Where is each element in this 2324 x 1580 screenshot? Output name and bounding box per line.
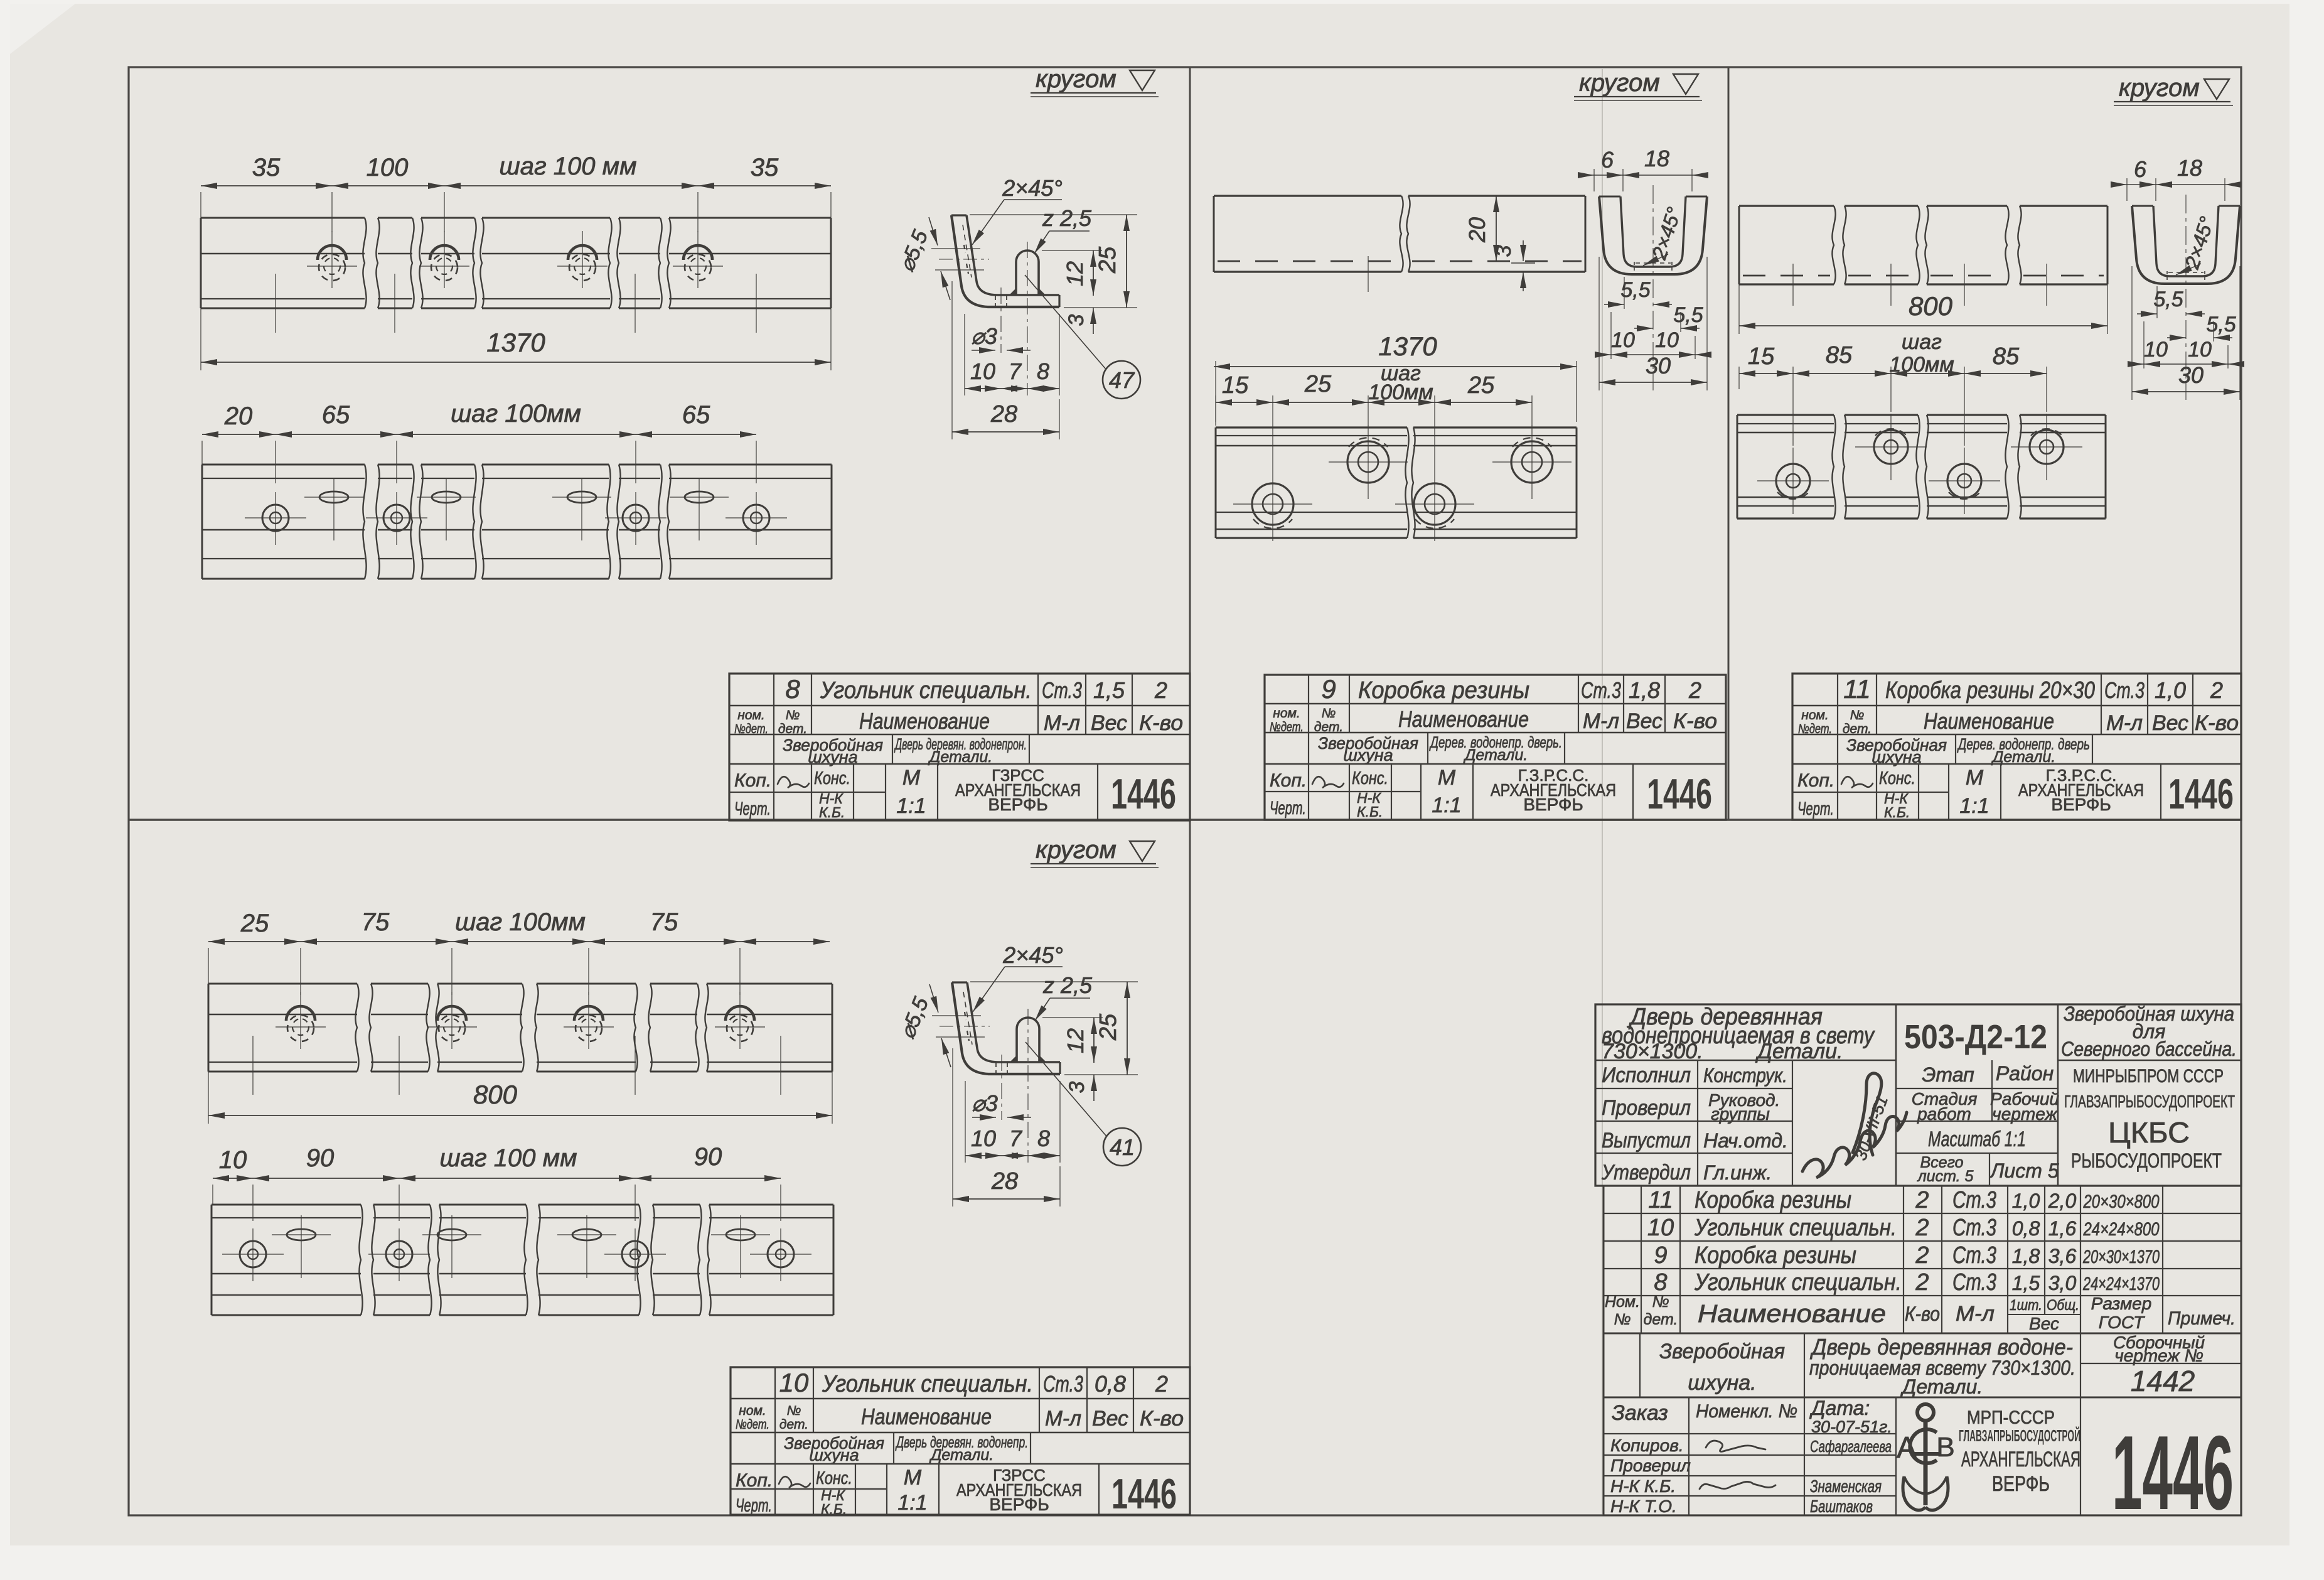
svg-text:800: 800 — [1909, 291, 1953, 321]
svg-text:М: М — [904, 1466, 922, 1490]
svg-text:6: 6 — [1601, 147, 1614, 173]
svg-text:2: 2 — [1915, 1242, 1929, 1269]
svg-text:ном.: ном. — [1273, 706, 1300, 721]
svg-text:№дет.: №дет. — [736, 1417, 769, 1432]
svg-text:РЫБОСУДОПРОЕКТ: РЫБОСУДОПРОЕКТ — [2071, 1149, 2222, 1172]
svg-text:1,6: 1,6 — [2048, 1217, 2077, 1240]
svg-text:8: 8 — [1037, 1126, 1050, 1151]
svg-text:Коп.: Коп. — [736, 1470, 773, 1491]
svg-text:7: 7 — [1009, 358, 1022, 384]
svg-text:Наименование: Наименование — [859, 708, 990, 734]
svg-text:ЦКБС: ЦКБС — [2108, 1116, 2190, 1149]
svg-text:Лист 5: Лист 5 — [1989, 1159, 2059, 1182]
svg-text:Ном.: Ном. — [1605, 1293, 1640, 1311]
svg-text:Общ.: Общ. — [2047, 1297, 2079, 1314]
svg-text:65: 65 — [682, 401, 710, 429]
svg-text:№дет.: №дет. — [1798, 722, 1832, 736]
svg-text:11: 11 — [1648, 1187, 1673, 1213]
svg-text:АРХАНГЕЛЬСКАЯ: АРХАНГЕЛЬСКАЯ — [1961, 1448, 2080, 1471]
svg-text:№дет.: №дет. — [1270, 720, 1304, 734]
svg-text:Черт.: Черт. — [734, 798, 771, 819]
svg-text:Вес: Вес — [1092, 1407, 1128, 1431]
svg-text:5,5: 5,5 — [1620, 278, 1650, 302]
svg-text:10: 10 — [2188, 338, 2212, 362]
svg-text:ГЛАВЗАПРЫБОСУДОСТРОЙ: ГЛАВЗАПРЫБОСУДОСТРОЙ — [1959, 1426, 2080, 1445]
svg-text:2×45°: 2×45° — [1002, 175, 1062, 201]
svg-text:2: 2 — [1155, 1371, 1168, 1397]
svg-text:№: № — [1322, 706, 1336, 721]
svg-text:Размер: Размер — [2091, 1294, 2152, 1313]
svg-text:Коробка резины: Коробка резины — [1695, 1242, 1856, 1269]
svg-text:Черт.: Черт. — [736, 1495, 772, 1516]
svg-text:503-Д2-12: 503-Д2-12 — [1904, 1018, 2047, 1056]
svg-text:100: 100 — [367, 154, 409, 181]
svg-text:1442: 1442 — [2131, 1365, 2195, 1397]
svg-text:28: 28 — [991, 1168, 1018, 1195]
svg-text:2: 2 — [1915, 1269, 1929, 1296]
svg-text:Коп.: Коп. — [1797, 770, 1834, 791]
svg-text:1,5: 1,5 — [2012, 1272, 2040, 1294]
svg-text:группы: группы — [1711, 1104, 1770, 1124]
svg-text:шаг: шаг — [1902, 330, 1942, 354]
svg-text:Сафаргалеева: Сафаргалеева — [1810, 1437, 1892, 1456]
svg-text:К.Б.: К.Б. — [1357, 803, 1383, 820]
svg-text:М-л: М-л — [1583, 709, 1619, 733]
svg-text:Масштаб 1:1: Масштаб 1:1 — [1928, 1127, 2026, 1151]
svg-text:Конс.: Конс. — [1879, 768, 1915, 788]
svg-text:Ст.3: Ст.3 — [1043, 1371, 1083, 1397]
svg-text:20: 20 — [224, 402, 253, 430]
svg-text:Наименование: Наименование — [1398, 706, 1529, 732]
svg-text:18: 18 — [1644, 146, 1669, 171]
svg-text:шхуна: шхуна — [808, 748, 857, 766]
svg-text:1,0: 1,0 — [2155, 677, 2186, 703]
svg-text:Северного бассейна.: Северного бассейна. — [2061, 1038, 2237, 1060]
svg-text:Район: Район — [1996, 1062, 2054, 1085]
svg-text:№: № — [1614, 1311, 1631, 1328]
svg-text:6: 6 — [2134, 156, 2147, 182]
svg-text:Ст.3: Ст.3 — [1952, 1215, 1996, 1241]
svg-text:ВЕРФЬ: ВЕРФЬ — [1992, 1472, 2050, 1496]
svg-text:5,5: 5,5 — [2153, 288, 2183, 311]
svg-text:Знаменская: Знаменская — [1810, 1476, 1882, 1496]
svg-text:К.Б.: К.Б. — [1884, 804, 1910, 820]
svg-text:2: 2 — [1915, 1215, 1929, 1241]
svg-text:65: 65 — [322, 401, 350, 429]
svg-text:9: 9 — [1654, 1242, 1667, 1269]
svg-text:3: 3 — [1064, 314, 1088, 326]
svg-text:шхуна: шхуна — [1343, 746, 1393, 765]
svg-text:Ст.3: Ст.3 — [1952, 1269, 1996, 1296]
svg-text:Вес: Вес — [1626, 709, 1663, 733]
svg-text:1:1: 1:1 — [1432, 793, 1461, 817]
svg-text:85: 85 — [1993, 343, 2020, 370]
svg-text:ном.: ном. — [737, 708, 764, 723]
svg-text:1,5: 1,5 — [1093, 677, 1125, 703]
svg-text:дет.: дет. — [1314, 720, 1343, 734]
svg-text:25: 25 — [1304, 371, 1332, 397]
svg-text:Ст.3: Ст.3 — [1952, 1187, 1996, 1213]
svg-text:1:1: 1:1 — [896, 794, 926, 818]
svg-text:кругом: кругом — [1036, 65, 1116, 93]
svg-text:0,8: 0,8 — [2012, 1217, 2040, 1240]
svg-text:шхуна: шхуна — [809, 1446, 859, 1464]
svg-text:ном.: ном. — [1801, 708, 1828, 723]
svg-text:Ст.3: Ст.3 — [1952, 1242, 1996, 1269]
svg-text:10: 10 — [1611, 328, 1635, 352]
svg-text:Черт.: Черт. — [1270, 798, 1306, 819]
svg-text:Дата:: Дата: — [1809, 1397, 1870, 1419]
svg-text:№: № — [786, 708, 800, 723]
svg-text:2×45°: 2×45° — [1002, 942, 1063, 968]
svg-text:Конс.: Конс. — [814, 768, 850, 788]
svg-text:Проверил: Проверил — [1610, 1456, 1691, 1475]
svg-text:Ст.3: Ст.3 — [1042, 677, 1082, 703]
svg-text:чертеж №: чертеж № — [2114, 1346, 2204, 1365]
svg-text:№: № — [1850, 708, 1865, 723]
svg-text:М-л: М-л — [1045, 1407, 1081, 1431]
svg-text:100мм: 100мм — [1889, 353, 1954, 377]
svg-text:Наименование: Наименование — [1698, 1300, 1886, 1328]
svg-text:2: 2 — [2210, 677, 2223, 703]
svg-text:1446: 1446 — [1111, 770, 1176, 818]
svg-text:А: А — [1897, 1431, 1917, 1464]
svg-text:Вес: Вес — [2152, 711, 2188, 735]
svg-text:ном.: ном. — [739, 1404, 766, 1418]
svg-text:800: 800 — [473, 1080, 518, 1109]
svg-text:лист. 5: лист. 5 — [1917, 1168, 1974, 1185]
svg-text:кругом: кругом — [2119, 74, 2200, 102]
svg-text:Исполнил: Исполнил — [1602, 1063, 1691, 1087]
svg-text:5,5: 5,5 — [2206, 313, 2236, 336]
svg-text:75: 75 — [361, 908, 390, 936]
svg-text:шаг 100 мм: шаг 100 мм — [500, 153, 637, 180]
svg-text:Ст.3: Ст.3 — [1581, 677, 1621, 703]
svg-text:Проверил: Проверил — [1602, 1096, 1691, 1120]
svg-text:90: 90 — [694, 1143, 722, 1171]
svg-text:100мм: 100мм — [1368, 380, 1433, 404]
svg-text:10: 10 — [2144, 338, 2168, 362]
svg-text:1446: 1446 — [1647, 770, 1712, 818]
svg-text:1шт.: 1шт. — [2010, 1297, 2042, 1314]
svg-text:Детали.: Детали. — [929, 1446, 993, 1464]
svg-text:работ: работ — [1917, 1104, 1971, 1124]
svg-text:Наименование: Наименование — [1924, 708, 2054, 734]
svg-text:К-во: К-во — [2195, 711, 2239, 735]
svg-text:К-во: К-во — [1139, 711, 1183, 735]
svg-text:24×24×800: 24×24×800 — [2083, 1219, 2160, 1240]
svg-text:Заказ: Заказ — [1612, 1401, 1668, 1425]
svg-text:Копиров.: Копиров. — [1610, 1436, 1684, 1455]
svg-text:90: 90 — [306, 1144, 335, 1172]
svg-text:3,6: 3,6 — [2048, 1245, 2077, 1267]
svg-text:35: 35 — [751, 154, 779, 181]
svg-text:ГЛАВЗАПРЫБОСУДОПРОЕКТ: ГЛАВЗАПРЫБОСУДОПРОЕКТ — [2064, 1092, 2235, 1111]
svg-text:Детали.: Детали. — [928, 748, 992, 766]
svg-text:10: 10 — [1655, 328, 1679, 352]
svg-text:Н-К Т.О.: Н-К Т.О. — [1610, 1497, 1677, 1516]
svg-text:28: 28 — [990, 401, 1017, 427]
svg-text:25: 25 — [240, 910, 269, 937]
svg-text:8: 8 — [785, 674, 800, 704]
svg-text:Примеч.: Примеч. — [2168, 1308, 2236, 1329]
svg-text:Выпустил: Выпустил — [1602, 1129, 1691, 1153]
svg-text:Наименование: Наименование — [861, 1404, 992, 1429]
svg-text:1,8: 1,8 — [1629, 677, 1660, 703]
svg-text:8: 8 — [1037, 358, 1049, 384]
svg-text:ГОСТ: ГОСТ — [2099, 1313, 2145, 1332]
svg-text:7: 7 — [1009, 1126, 1023, 1151]
svg-text:12: 12 — [1062, 261, 1088, 286]
svg-text:10: 10 — [1647, 1215, 1674, 1241]
svg-text:Угольник специальн.: Угольник специальн. — [820, 677, 1032, 704]
svg-text:М: М — [902, 766, 921, 790]
svg-text:20×30×1370: 20×30×1370 — [2082, 1247, 2160, 1267]
svg-text:Коробка резины 20×30: Коробка резины 20×30 — [1885, 677, 2095, 704]
svg-text:К.Б.: К.Б. — [819, 804, 845, 820]
svg-text:1,8: 1,8 — [2012, 1245, 2040, 1267]
svg-text:МРП-СССР: МРП-СССР — [1967, 1407, 2055, 1428]
svg-text:2: 2 — [1688, 677, 1701, 703]
svg-text:К-во: К-во — [1140, 1407, 1184, 1431]
svg-text:2: 2 — [1154, 677, 1167, 703]
svg-text:47: 47 — [1109, 367, 1135, 393]
svg-text:18: 18 — [2177, 155, 2202, 181]
svg-text:30: 30 — [1646, 353, 1671, 379]
svg-text:К-во: К-во — [1905, 1303, 1940, 1325]
svg-text:Угольник специальн.: Угольник специальн. — [1694, 1269, 1902, 1296]
svg-text:дет.: дет. — [779, 1417, 808, 1432]
svg-text:Черт.: Черт. — [1797, 798, 1834, 819]
svg-text:1370: 1370 — [486, 328, 545, 357]
svg-text:шхуна.: шхуна. — [1688, 1371, 1756, 1395]
svg-text:0,8: 0,8 — [1095, 1371, 1126, 1397]
svg-text:1:1: 1:1 — [1959, 794, 1989, 818]
svg-text:30-07-51г.: 30-07-51г. — [1811, 1417, 1892, 1436]
svg-text:кругом: кругом — [1036, 836, 1116, 864]
svg-text:⌀3: ⌀3 — [972, 1090, 998, 1116]
svg-text:3: 3 — [1065, 1081, 1089, 1093]
svg-text:МИНРЫБПРОМ СССР: МИНРЫБПРОМ СССР — [2073, 1066, 2224, 1087]
svg-text:Вес: Вес — [2029, 1314, 2059, 1333]
svg-text:Н-К К.Б.: Н-К К.Б. — [1610, 1476, 1676, 1496]
svg-text:Детали.: Детали. — [1463, 746, 1528, 764]
svg-text:Коп.: Коп. — [734, 770, 771, 791]
svg-text:15: 15 — [1222, 372, 1249, 399]
svg-text:20: 20 — [1464, 217, 1490, 243]
svg-text:кругом: кругом — [1579, 69, 1660, 97]
svg-text:М: М — [1966, 766, 1984, 790]
svg-text:шаг 100 мм: шаг 100 мм — [440, 1144, 577, 1172]
svg-text:шхуна: шхуна — [1872, 748, 1921, 766]
svg-text:12: 12 — [1063, 1028, 1088, 1053]
svg-text:Ст.3: Ст.3 — [2104, 677, 2145, 703]
svg-text:2,0: 2,0 — [2048, 1190, 2077, 1212]
svg-text:9: 9 — [1321, 674, 1336, 704]
svg-text:Вес: Вес — [1091, 711, 1127, 735]
svg-text:1370: 1370 — [1378, 331, 1437, 361]
svg-text:8: 8 — [1654, 1269, 1667, 1296]
svg-text:10: 10 — [779, 1368, 809, 1397]
svg-text:10: 10 — [971, 1126, 996, 1151]
svg-text:дет.: дет. — [1843, 722, 1872, 736]
svg-text:Детали.: Детали. — [1991, 748, 2055, 766]
svg-text:3,0: 3,0 — [2048, 1272, 2077, 1294]
svg-text:10: 10 — [219, 1146, 247, 1174]
svg-text:шаг 100мм: шаг 100мм — [451, 400, 581, 427]
svg-text:20×30×800: 20×30×800 — [2083, 1191, 2160, 1212]
svg-text:730×1300.: 730×1300. — [1602, 1040, 1703, 1063]
svg-text:ВЕРФЬ: ВЕРФЬ — [988, 795, 1047, 814]
svg-text:дет.: дет. — [1644, 1311, 1678, 1328]
svg-text:чертеж: чертеж — [1992, 1104, 2058, 1124]
svg-text:Нач.отд.: Нач.отд. — [1703, 1129, 1788, 1152]
svg-text:Угольник специальн.: Угольник специальн. — [822, 1371, 1033, 1397]
svg-text:Угольник специальн.: Угольник специальн. — [1694, 1215, 1897, 1241]
svg-text:Баштаков: Баштаков — [1810, 1497, 1873, 1516]
svg-text:25: 25 — [1467, 372, 1495, 399]
svg-text:85: 85 — [1826, 342, 1853, 368]
svg-text:Этап: Этап — [1922, 1063, 1974, 1086]
svg-text:Коп.: Коп. — [1270, 770, 1307, 791]
svg-text:1,0: 1,0 — [2012, 1190, 2040, 1212]
svg-text:Коробка резины: Коробка резины — [1358, 677, 1529, 704]
svg-text:2: 2 — [1915, 1187, 1929, 1213]
svg-text:Конструк.: Конструк. — [1703, 1064, 1787, 1087]
svg-text:75: 75 — [650, 908, 678, 936]
svg-text:35: 35 — [252, 154, 281, 181]
svg-text:1446: 1446 — [2168, 770, 2234, 818]
svg-text:3: 3 — [1492, 245, 1516, 257]
svg-text:ВЕРФЬ: ВЕРФЬ — [2051, 795, 2111, 814]
svg-text:Утвердил: Утвердил — [1601, 1161, 1691, 1185]
svg-text:1:1: 1:1 — [897, 1491, 927, 1515]
svg-text:30: 30 — [2178, 362, 2204, 388]
svg-text:10: 10 — [970, 358, 995, 384]
svg-text:№: № — [1652, 1293, 1669, 1311]
svg-text:z 2,5: z 2,5 — [1042, 205, 1092, 231]
svg-text:К-во: К-во — [1673, 709, 1717, 733]
svg-text:дет.: дет. — [778, 722, 807, 736]
svg-text:41: 41 — [1110, 1134, 1135, 1160]
svg-text:11: 11 — [1843, 674, 1871, 704]
svg-text:Конс.: Конс. — [816, 1468, 852, 1488]
svg-text:Детали.: Детали. — [1755, 1040, 1843, 1063]
svg-text:⌀3: ⌀3 — [971, 323, 997, 349]
svg-text:№дет.: №дет. — [734, 722, 768, 736]
svg-text:ВЕРФЬ: ВЕРФЬ — [1523, 795, 1583, 814]
svg-text:Гл.инж.: Гл.инж. — [1703, 1161, 1772, 1184]
svg-text:М-л: М-л — [1956, 1302, 1995, 1326]
svg-text:z 2,5: z 2,5 — [1042, 972, 1093, 998]
svg-text:К.Б.: К.Б. — [821, 1501, 847, 1517]
svg-text:15: 15 — [1748, 343, 1775, 370]
svg-text:Зверобойная: Зверобойная — [1659, 1340, 1785, 1363]
svg-text:1446: 1446 — [2112, 1414, 2234, 1532]
svg-text:24×24×1370: 24×24×1370 — [2082, 1274, 2160, 1294]
svg-text:Дверь деревянная водоне-: Дверь деревянная водоне- — [1809, 1334, 2073, 1360]
svg-text:М-л: М-л — [2106, 711, 2143, 735]
svg-text:ВЕРФЬ: ВЕРФЬ — [989, 1495, 1049, 1514]
svg-text:М-л: М-л — [1044, 711, 1080, 735]
svg-text:Номенкл. №: Номенкл. № — [1696, 1401, 1797, 1422]
svg-text:1446: 1446 — [1111, 1470, 1177, 1518]
svg-text:Детали.: Детали. — [1900, 1375, 1983, 1398]
svg-text:5,5: 5,5 — [1673, 303, 1703, 327]
svg-text:В: В — [1936, 1432, 1954, 1463]
svg-text:№: № — [787, 1404, 801, 1418]
svg-text:М: М — [1438, 766, 1456, 790]
svg-text:Конс.: Конс. — [1352, 768, 1388, 788]
svg-text:Коробка резины: Коробка резины — [1695, 1187, 1851, 1213]
svg-text:шаг 100мм: шаг 100мм — [455, 908, 586, 936]
